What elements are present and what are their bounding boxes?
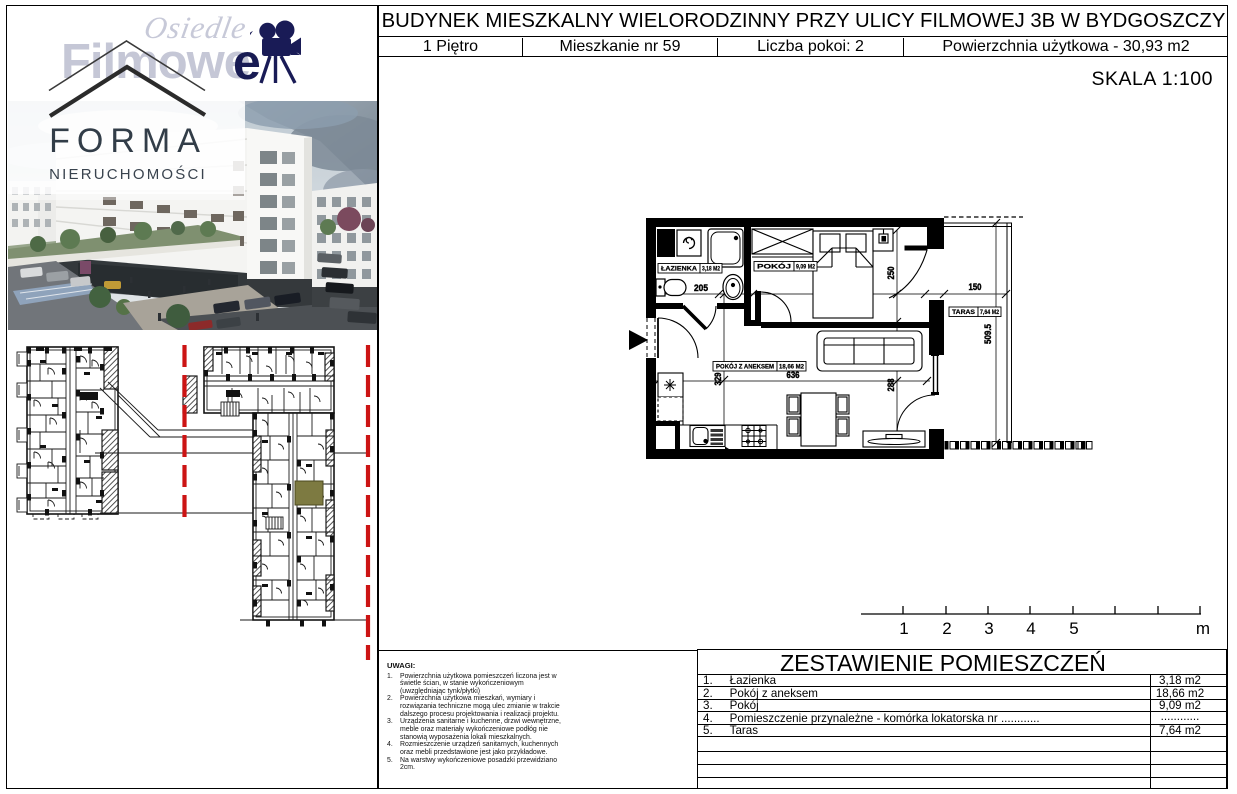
svg-text:18,66 M2: 18,66 M2: [779, 364, 804, 371]
svg-text:POKÓJ Z ANEKSEM: POKÓJ Z ANEKSEM: [716, 362, 774, 371]
svg-text:7,64 M2: 7,64 M2: [980, 309, 999, 316]
svg-text:636: 636: [787, 370, 800, 380]
svg-text:3,18 M2: 3,18 M2: [702, 266, 720, 273]
svg-text:TARAS: TARAS: [952, 309, 976, 316]
svg-text:9,09 M2: 9,09 M2: [796, 264, 815, 271]
svg-text:2: 2: [942, 619, 951, 638]
svg-text:329: 329: [713, 372, 723, 385]
svg-text:5: 5: [1069, 619, 1078, 638]
svg-text:1: 1: [899, 619, 908, 638]
svg-text:3: 3: [984, 619, 993, 638]
svg-text:POKÓJ: POKÓJ: [757, 262, 791, 271]
svg-text:150: 150: [969, 282, 982, 292]
svg-text:4: 4: [1026, 619, 1035, 638]
svg-text:205: 205: [694, 283, 708, 293]
svg-text:288: 288: [886, 378, 896, 391]
svg-text:m: m: [1196, 619, 1210, 638]
svg-text:509.5: 509.5: [983, 324, 993, 344]
svg-text:250: 250: [886, 266, 896, 279]
svg-text:ŁAZIENKA: ŁAZIENKA: [661, 266, 697, 273]
